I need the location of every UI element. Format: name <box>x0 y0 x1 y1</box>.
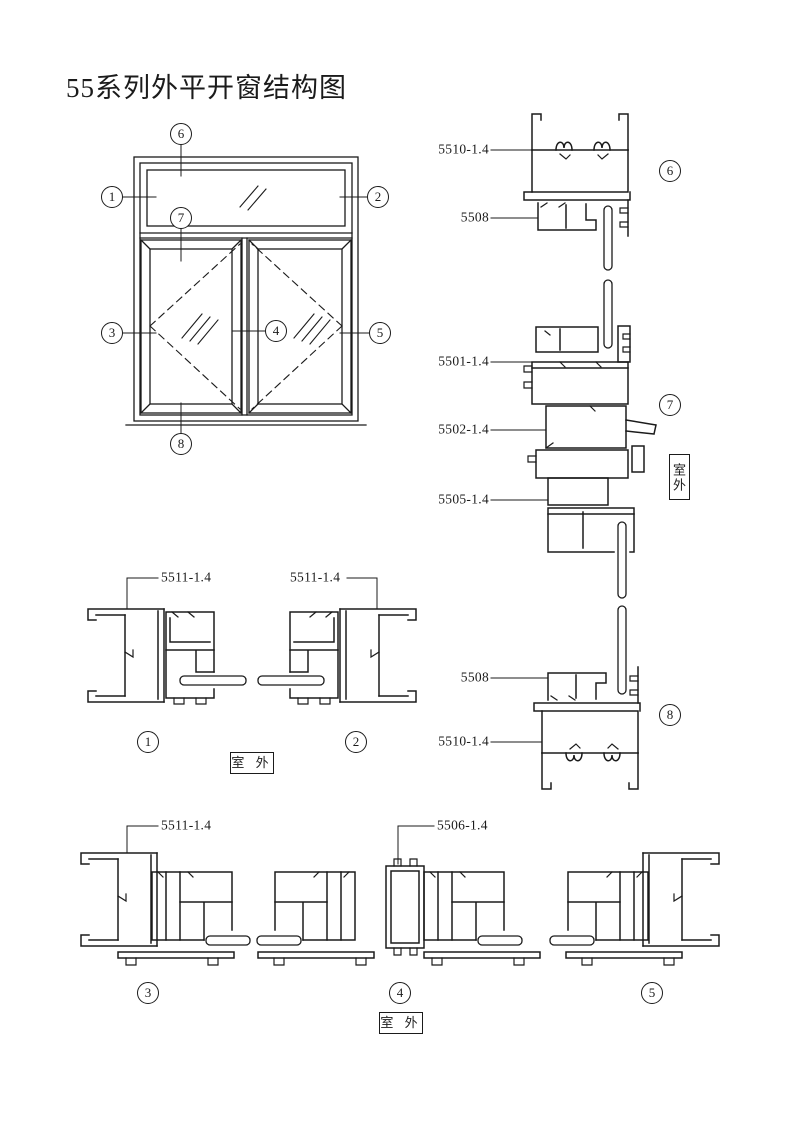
elevation-callout-6: 6 <box>170 123 192 145</box>
drawing-sheet: 55系列外平开窗结构图 5510-1.4 5508 5501-1.4 5502-… <box>0 0 800 1131</box>
elevation-callout-2: 2 <box>367 186 389 208</box>
label-5502: 5502-1.4 <box>437 423 490 438</box>
label-5511-sec3: 5511-1.4 <box>160 819 212 834</box>
section-number-3: 3 <box>137 982 159 1004</box>
section-number-1: 1 <box>137 731 159 753</box>
section-number-4: 4 <box>389 982 411 1004</box>
outdoor-label-right: 室外 <box>669 454 690 500</box>
label-5508-top: 5508 <box>460 211 490 226</box>
opening-direction-symbols <box>150 244 342 409</box>
label-5511-sec2: 5511-1.4 <box>289 571 341 586</box>
outdoor-label-bottom: 室 外 <box>379 1012 423 1034</box>
section-4-profile <box>257 859 540 965</box>
label-5508-bottom: 5508 <box>460 671 490 686</box>
label-5505: 5505-1.4 <box>437 493 490 508</box>
section-6-profile <box>524 114 630 236</box>
section-5-profile <box>550 853 719 965</box>
elevation-callout-8: 8 <box>170 433 192 455</box>
label-5511-sec1: 5511-1.4 <box>160 571 212 586</box>
section-number-6: 6 <box>659 160 681 182</box>
elevation-callout-7: 7 <box>170 207 192 229</box>
label-5501: 5501-1.4 <box>437 355 490 370</box>
drawing-title: 55系列外平开窗结构图 <box>66 66 347 105</box>
elevation-drawing <box>126 157 366 425</box>
elevation-callout-1: 1 <box>101 186 123 208</box>
section-8-profile <box>534 667 640 789</box>
section-1-profile <box>88 609 246 704</box>
elevation-callout-5: 5 <box>369 322 391 344</box>
elevation-callout-4: 4 <box>265 320 287 342</box>
label-5510-top: 5510-1.4 <box>437 143 490 158</box>
section-number-2: 2 <box>345 731 367 753</box>
label-5510-bottom: 5510-1.4 <box>437 735 490 750</box>
elevation-callout-3: 3 <box>101 322 123 344</box>
section-7-profile <box>524 326 656 552</box>
section-number-8: 8 <box>659 704 681 726</box>
section-number-5: 5 <box>641 982 663 1004</box>
outdoor-label-mid: 室 外 <box>230 752 274 774</box>
section-3-profile <box>81 853 250 965</box>
section-2-profile <box>258 609 416 704</box>
section-number-7: 7 <box>659 394 681 416</box>
label-5506-sec4: 5506-1.4 <box>436 819 489 834</box>
